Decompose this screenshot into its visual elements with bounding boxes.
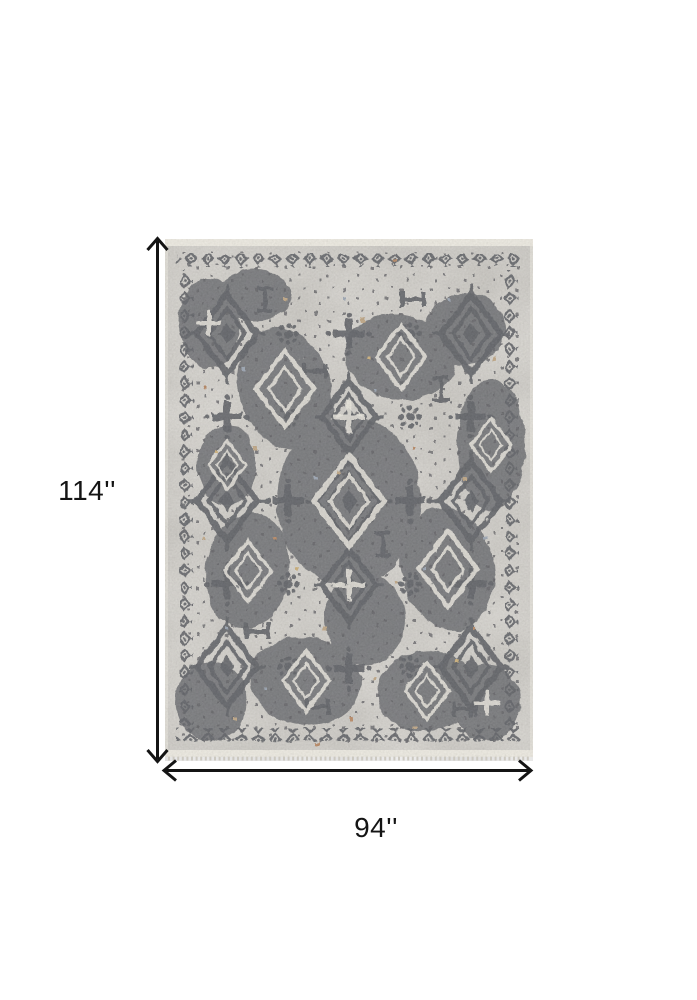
product-dimension-image: 114'' 94'' — [0, 0, 697, 1000]
width-dimension-label: 94'' — [336, 814, 416, 842]
rug-photo — [165, 239, 533, 761]
rug-pattern-svg — [165, 239, 533, 761]
arrow-left-icon — [164, 761, 176, 781]
arrow-right-icon — [519, 761, 531, 781]
height-dimension-label: 114'' — [47, 477, 127, 505]
width-dimension-arrow — [164, 761, 531, 781]
